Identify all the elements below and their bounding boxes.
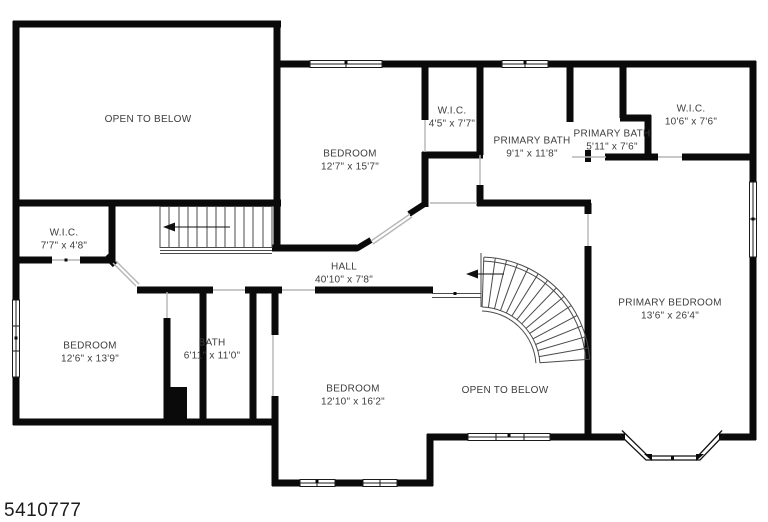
room-dimensions: 6'11" x 11'0" [184,350,241,363]
room-label-primary-bath-small: PRIMARY BATH 5'11" x 7'6" [574,129,651,154]
room-name: W.I.C. [677,104,706,115]
room-dimensions: 13'6" x 26'4" [618,310,721,323]
room-label-bedroom-bottom: BEDROOM 12'10" x 16'2" [321,384,385,409]
room-name: BATH [199,338,226,349]
room-dimensions: 12'7" x 15'7" [321,161,379,174]
staircase-straight [160,207,272,254]
walls [13,21,756,486]
room-label-bath: BATH 6'11" x 11'0" [184,338,241,363]
floor-plan-drawing [0,0,768,522]
room-label-wic-right: W.I.C. 10'6" x 7'6" [665,104,717,129]
floor-plan-page: OPEN TO BELOW BEDROOM 12'7" x 15'7" W.I.… [0,0,768,522]
room-name: HALL [331,262,357,273]
room-dimensions: 4'5" x 7'7" [429,118,475,131]
room-label-primary-bath-large: PRIMARY BATH 9'1" x 11'8" [494,136,571,161]
room-dimensions: 7'7" x 4'8" [41,240,87,253]
room-label-bedroom-left: BEDROOM 12'6" x 13'9" [61,341,119,366]
room-dimensions: 10'6" x 7'6" [665,116,717,129]
room-dimensions: 40'10" x 7'8" [315,274,373,287]
room-name: W.I.C. [438,106,467,117]
room-label-bedroom-top: BEDROOM 12'7" x 15'7" [321,149,379,174]
room-dimensions: 9'1" x 11'8" [494,148,571,161]
room-label-open-to-below-upper: OPEN TO BELOW [105,114,192,127]
room-name: OPEN TO BELOW [105,114,192,125]
room-name: OPEN TO BELOW [462,385,549,396]
stair-direction-arrow [466,270,478,279]
room-name: PRIMARY BEDROOM [618,298,721,309]
room-name: W.I.C. [50,228,79,239]
room-dimensions: 5'11" x 7'6" [574,141,651,154]
bay-window [619,431,725,462]
room-dimensions: 12'6" x 13'9" [61,353,119,366]
staircase-curved [432,253,590,363]
room-dimensions: 12'10" x 16'2" [321,396,385,409]
room-name: BEDROOM [323,149,376,160]
room-label-wic-top: W.I.C. 4'5" x 7'7" [429,106,475,131]
room-label-hall: HALL 40'10" x 7'8" [315,262,373,287]
room-label-primary-bedroom: PRIMARY BEDROOM 13'6" x 26'4" [618,298,721,323]
room-name: BEDROOM [326,384,379,395]
listing-number: 5410777 [4,500,81,522]
room-name: PRIMARY BATH [574,129,651,140]
room-name: BEDROOM [63,341,116,352]
chimney [167,387,187,422]
room-name: PRIMARY BATH [494,136,571,147]
room-label-wic-left: W.I.C. 7'7" x 4'8" [41,228,87,253]
room-label-open-to-below-lower: OPEN TO BELOW [462,385,549,398]
